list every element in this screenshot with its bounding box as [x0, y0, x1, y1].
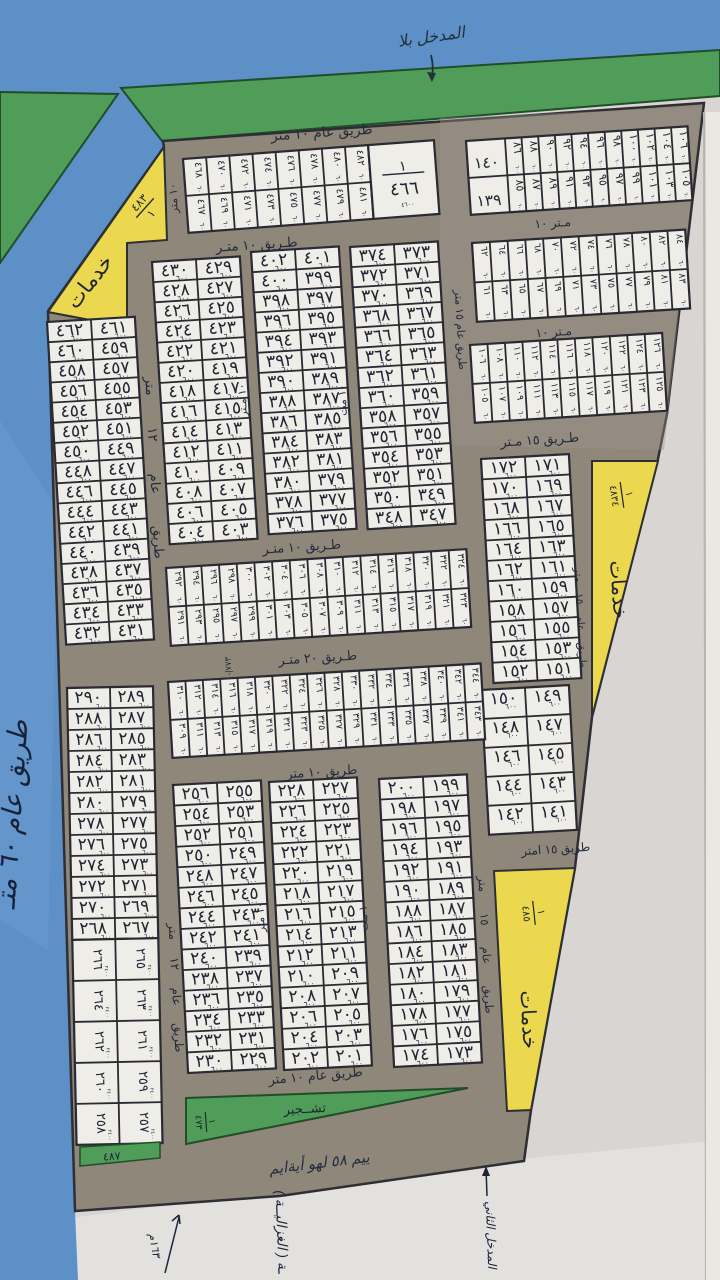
svg-text:٦٠٠: ٦٠٠ — [599, 198, 605, 206]
svg-text:٦٠٠: ٦٠٠ — [291, 525, 303, 535]
svg-text:٦٠٠: ٦٠٠ — [249, 744, 257, 755]
svg-text:٧٠: ٧٠ — [549, 241, 561, 252]
svg-text:٣١١: ٣١١ — [194, 722, 206, 738]
svg-text:٦٠٠: ٦٠٠ — [554, 786, 566, 796]
svg-text:٣٢١: ٣٢١ — [280, 717, 292, 733]
svg-text:١٢٤: ١٢٤ — [633, 338, 645, 354]
svg-text:٤٦٧: ٤٦٧ — [195, 198, 207, 216]
svg-text:٦٠٠: ٦٠٠ — [221, 221, 229, 232]
svg-text:٦٠٠: ٦٠٠ — [353, 738, 361, 749]
svg-text:٦٠٠: ٦٠٠ — [390, 623, 398, 634]
svg-text:٦٠٠: ٦٠٠ — [499, 412, 507, 423]
svg-text:٦٠٠: ٦٠٠ — [179, 748, 187, 759]
svg-text:٢٩٤: ٢٩٤ — [190, 570, 202, 586]
svg-text:٦٠٠: ٦٠٠ — [535, 269, 543, 280]
svg-text:٢٤٠٠: ٢٤٠٠ — [103, 966, 109, 977]
svg-text:٢٩١: ٢٩١ — [174, 610, 186, 626]
svg-text:٦٠٠: ٦٠٠ — [417, 1058, 429, 1068]
svg-text:٦٠٠: ٦٠٠ — [679, 300, 687, 311]
svg-text:٨٧: ٨٧ — [530, 178, 543, 191]
svg-text:٦٠٠: ٦٠٠ — [552, 757, 564, 767]
svg-text:٣٣٠: ٣٣٠ — [348, 675, 360, 691]
svg-text:٦٠٠: ٦٠٠ — [569, 407, 577, 418]
svg-text:١٠٩: ١٠٩ — [513, 385, 525, 401]
svg-text:٤٨١: ٤٨١ — [357, 186, 369, 203]
svg-text:-|٧٧٣: -|٧٧٣ — [222, 656, 233, 676]
svg-text:٦٠٠: ٦٠٠ — [632, 196, 638, 204]
svg-text:٧٦: ٧٦ — [602, 238, 614, 249]
svg-text:٦٠٠: ٦٠٠ — [505, 701, 517, 711]
svg-text:٦٠٠: ٦٠٠ — [588, 266, 596, 277]
svg-text:٦٠٠: ٦٠٠ — [437, 695, 445, 706]
svg-text:٦٠٠: ٦٠٠ — [551, 409, 559, 420]
svg-text:٦٠٠: ٦٠٠ — [455, 694, 463, 705]
svg-text:٣٤٤: ٣٤٤ — [469, 667, 481, 683]
svg-text:٦٠٠: ٦٠٠ — [335, 522, 347, 532]
svg-text:٣٢٩: ٣٢٩ — [350, 713, 362, 729]
svg-text:٦٠٠: ٦٠٠ — [506, 730, 518, 740]
svg-text:٦٠٠: ٦٠٠ — [517, 270, 525, 281]
svg-text:٨٢: ٨٢ — [656, 235, 668, 246]
svg-text:٣٠٠: ٣٠٠ — [243, 566, 255, 582]
svg-text:٦٠٠: ٦٠٠ — [460, 618, 468, 629]
svg-text:٦٠٠: ٦٠٠ — [89, 636, 101, 646]
svg-text:٦٠٠: ٦٠٠ — [597, 160, 603, 168]
svg-text:٦٠٠: ٦٠٠ — [299, 589, 307, 600]
svg-text:١٢٣: ١٢٣ — [636, 377, 648, 394]
svg-text:٦٠٠: ٦٠٠ — [519, 310, 527, 321]
svg-text:٦٠٠: ٦٠٠ — [497, 373, 505, 384]
svg-text:٦٠٠: ٦٠٠ — [314, 214, 322, 225]
svg-text:٦٠٠: ٦٠٠ — [335, 739, 343, 750]
svg-text:٦٠٠: ٦٠٠ — [616, 197, 622, 205]
svg-text:٦٠٠: ٦٠٠ — [405, 735, 413, 746]
svg-text:٨٩: ٨٩ — [546, 177, 559, 190]
svg-text:٦٠٠: ٦٠٠ — [198, 223, 206, 234]
svg-text:٦٠٠: ٦٠٠ — [623, 264, 631, 275]
svg-text:٦٠٠: ٦٠٠ — [547, 163, 553, 171]
svg-text:٦٠٠: ٦٠٠ — [590, 305, 598, 316]
svg-text:٦٠٠: ٦٠٠ — [630, 158, 636, 166]
svg-text:٦٠٠: ٦٠٠ — [370, 585, 378, 596]
svg-text:٦٠٠: ٦٠٠ — [244, 219, 252, 230]
svg-text:٤٧٤: ٤٧٤ — [261, 156, 273, 173]
svg-text:٦٠٠: ٦٠٠ — [266, 630, 274, 641]
svg-text:٦٠٠: ٦٠٠ — [443, 619, 451, 630]
svg-text:١١٧: ١١٧ — [583, 380, 595, 397]
svg-text:٦٠٠: ٦٠٠ — [516, 203, 522, 211]
svg-text:٦٠٠: ٦٠٠ — [563, 162, 569, 170]
svg-text:٦٠٠: ٦٠٠ — [608, 304, 616, 315]
svg-text:١٠ متر: ١٠ متر — [254, 902, 268, 934]
svg-text:٣٣٨: ٣٣٨ — [417, 671, 429, 688]
svg-text:٦٠٠: ٦٠٠ — [192, 535, 204, 545]
svg-text:٦٠٠: ٦٠٠ — [390, 520, 402, 530]
svg-text:٣١٢: ٣١٢ — [191, 684, 203, 700]
svg-text:١٠٥: ١٠٥ — [679, 168, 692, 187]
svg-text:٩٨: ٩٨ — [610, 135, 623, 148]
svg-text:٦٠٠: ٦٠٠ — [301, 741, 309, 752]
svg-text:٦٠٠: ٦٠٠ — [570, 267, 578, 278]
svg-text:٦٠٠: ٦٠٠ — [516, 411, 524, 422]
svg-text:٢٤٠٠: ٢٤٠٠ — [105, 1089, 111, 1100]
svg-text:٦٠٠: ٦٠٠ — [193, 596, 201, 607]
svg-text:٦٠٠: ٦٠٠ — [197, 747, 205, 758]
svg-text:٩٠: ٩٠ — [544, 139, 557, 152]
svg-text:٣٢٠: ٣٢٠ — [261, 680, 273, 696]
svg-text:٦٠٠: ٦٠٠ — [372, 624, 380, 635]
svg-text:٢٩٧: ٢٩٧ — [227, 607, 239, 624]
svg-text:٦٠٠: ٦٠٠ — [255, 1062, 267, 1072]
svg-text:١١٦: ١١٦ — [563, 342, 575, 358]
svg-text:٦٠٠: ٦٠٠ — [482, 413, 490, 424]
svg-text:٣٣٣: ٣٣٣ — [385, 711, 397, 728]
svg-text:١١٠: ١١٠ — [511, 346, 523, 362]
svg-text:١٠٥: ١٠٥ — [478, 387, 490, 403]
svg-text:٦٠٠: ٦٠٠ — [288, 179, 296, 190]
svg-text:٦٠٠: ٦٠٠ — [337, 212, 345, 223]
svg-text:٩٩: ٩٩ — [629, 171, 642, 184]
svg-text:٦٠٠: ٦٠٠ — [290, 216, 298, 227]
svg-text:٣١٨: ٣١٨ — [402, 556, 414, 573]
svg-text:١٠٨: ١٠٨ — [493, 347, 505, 364]
svg-text:٦٠٠: ٦٠٠ — [334, 587, 342, 598]
svg-text:٣٢٣: ٣٢٣ — [298, 716, 310, 733]
svg-text:٦٠٠: ٦٠٠ — [352, 586, 360, 597]
svg-text:٦٠٠: ٦٠٠ — [281, 590, 289, 601]
svg-text:٣١٥: ٣١٥ — [386, 597, 398, 613]
svg-text:٤٦٨: ٤٦٨ — [192, 162, 204, 180]
svg-text:٤٧٣: ٤٧٣ — [194, 1115, 205, 1130]
svg-text:٦٠٠: ٦٠٠ — [654, 363, 662, 374]
svg-text:٦٠٠: ٦٠٠ — [440, 580, 448, 591]
svg-text:٦٠٠: ٦٠٠ — [530, 164, 536, 172]
svg-text:٣٢٤: ٣٢٤ — [455, 553, 467, 569]
svg-text:٦٠٠: ٦٠٠ — [666, 193, 672, 201]
svg-text:٦٠٠: ٦٠٠ — [407, 622, 415, 633]
svg-text:٧٧: ٧٧ — [623, 276, 635, 288]
svg-text:٦٠٠: ٦٠٠ — [659, 261, 667, 272]
svg-text:٢٤٠٠: ٢٤٠٠ — [146, 965, 152, 976]
svg-text:٦٠٠: ٦٠٠ — [301, 628, 309, 639]
svg-text:٣٢٦: ٣٢٦ — [313, 677, 325, 693]
svg-text:٦٠٠: ٦٠٠ — [333, 701, 341, 712]
svg-text:٨٤: ٨٤ — [674, 234, 686, 245]
svg-text:٢٩٦: ٢٩٦ — [207, 569, 219, 585]
svg-text:٦٠٠: ٦٠٠ — [283, 742, 291, 753]
svg-text:٧٨: ٧٨ — [620, 237, 632, 249]
svg-text:٦٠٠: ٦٠٠ — [317, 588, 325, 599]
svg-text:٦٠٠: ٦٠٠ — [555, 307, 563, 318]
svg-text:مـتر ١٠: مـتر ١٠ — [534, 215, 571, 231]
svg-text:٣٢١: ٣٢١ — [440, 593, 452, 609]
svg-text:٦٠٠: ٦٠٠ — [511, 817, 523, 827]
svg-text:٦٠٠: ٦٠٠ — [195, 635, 203, 646]
svg-text:٦٠٠: ٦٠٠ — [644, 302, 652, 313]
svg-text:٦٠٠: ٦٠٠ — [508, 759, 520, 769]
svg-text:٦٠٠: ٦٠٠ — [641, 262, 649, 273]
svg-text:٦٢: ٦٢ — [478, 246, 490, 257]
svg-text:٦٠٠: ٦٠٠ — [318, 740, 326, 751]
svg-text:٦٠٠: ٦٠٠ — [663, 156, 669, 164]
svg-text:٦٠٠: ٦٠٠ — [549, 201, 555, 209]
svg-text:٣١٠: ٣١٠ — [331, 561, 343, 577]
svg-text:٦٠٠: ٦٠٠ — [646, 157, 652, 165]
svg-text:٨٣: ٨٣ — [676, 273, 688, 285]
svg-text:٦٠٠: ٦٠٠ — [213, 634, 221, 645]
svg-text:٦٠٠: ٦٠٠ — [458, 579, 466, 590]
svg-text:٦٠٠: ٦٠٠ — [425, 620, 433, 631]
svg-text:خدمات: خدمات — [605, 560, 631, 620]
svg-text:٢٤٠٠: ٢٤٠٠ — [147, 1006, 153, 1017]
svg-text:٣٣٤: ٣٣٤ — [382, 673, 394, 689]
svg-text:٣٢٢: ٣٢٢ — [278, 679, 290, 695]
svg-text:٦٦: ٦٦ — [514, 244, 526, 255]
svg-text:خدمات: خدمات — [515, 990, 540, 1050]
svg-text:٣٤٣: ٣٤٣ — [471, 705, 483, 722]
svg-text:٦٠٠: ٦٠٠ — [422, 581, 430, 592]
svg-text:٧١: ٧١ — [569, 280, 581, 291]
svg-text:٦٠٠: ٦٠٠ — [440, 733, 448, 744]
svg-text:٤٨٥: ٤٨٥ — [519, 905, 532, 922]
svg-text:٣١٩: ٣١٩ — [422, 594, 434, 610]
svg-text:٦٠٠: ٦٠٠ — [264, 591, 272, 602]
svg-text:١٠٣: ١٠٣ — [662, 169, 675, 188]
svg-text:٨٨: ٨٨ — [527, 140, 540, 153]
svg-text:٦٠٠: ٦٠٠ — [211, 595, 219, 606]
svg-text:٦٠٠: ٦٠٠ — [403, 697, 411, 708]
svg-text:٩٢: ٩٢ — [560, 138, 573, 151]
svg-text:٤٧٣: ٤٧٣ — [264, 193, 276, 211]
svg-text:٢٤٠٠: ٢٤٠٠ — [148, 1088, 154, 1099]
svg-text:٦٠٠: ٦٠٠ — [479, 374, 487, 385]
svg-text:٦٥: ٦٥ — [516, 283, 528, 294]
svg-text:٦٠٠: ٦٠٠ — [580, 161, 586, 169]
svg-text:٦٠٠: ٦٠٠ — [351, 700, 359, 711]
svg-text:١٠ مت: ١٠ مت — [336, 384, 350, 416]
svg-text:١١٤: ١١٤ — [546, 344, 558, 360]
svg-text:٨٠: ٨٠ — [638, 236, 650, 247]
svg-text:٦٠٠: ٦٠٠ — [311, 177, 319, 188]
svg-text:٢٤٠٠: ٢٤٠٠ — [149, 1129, 155, 1140]
svg-text:٦٠٠: ٦٠٠ — [357, 173, 365, 184]
svg-text:٦٠٠: ٦٠٠ — [385, 698, 393, 709]
svg-text:٦٠٠: ٦٠٠ — [661, 301, 669, 312]
svg-text:١١١: ١١١ — [531, 384, 543, 400]
svg-text:٦٠٠: ٦٠٠ — [387, 584, 395, 595]
svg-text:١٠٦: ١٠٦ — [476, 348, 488, 364]
svg-text:٣٢٨: ٣٢٨ — [330, 676, 342, 693]
svg-text:٦٠٠: ٦٠٠ — [229, 707, 237, 718]
svg-text:٣١٧: ٣١٧ — [246, 719, 258, 736]
svg-text:٩٧: ٩٧ — [613, 173, 626, 186]
svg-text:٨١: ٨١ — [658, 274, 670, 285]
svg-text:٤٦٩: ٤٦٩ — [218, 197, 230, 214]
svg-text:٣٠٨: ٣٠٨ — [313, 562, 325, 579]
svg-text:٦٠٠: ٦٠٠ — [586, 406, 594, 417]
svg-text:٦٠٠: ٦٠٠ — [514, 372, 522, 383]
svg-text:٤٧١: ٤٧١ — [241, 195, 253, 212]
svg-text:٣٠٢: ٣٠٢ — [260, 565, 272, 581]
svg-text:٦٣: ٦٣ — [498, 284, 510, 296]
svg-text:٣٢٧: ٣٢٧ — [333, 714, 345, 731]
svg-text:٦٠٠: ٦٠٠ — [533, 202, 539, 210]
svg-text:٣٣٩: ٣٣٩ — [437, 707, 449, 723]
svg-text:٣٠٣: ٣٠٣ — [281, 603, 293, 620]
svg-text:٤٨٢: ٤٨٢ — [354, 149, 366, 166]
svg-text:١٠٧: ١٠٧ — [496, 386, 508, 403]
svg-text:٦٠٠: ٦٠٠ — [178, 636, 186, 647]
svg-text:٦٠٠: ٦٠٠ — [267, 217, 275, 228]
svg-text:٣١٥: ٣١٥ — [228, 720, 240, 736]
svg-text:٦٠٠: ٦٠٠ — [626, 303, 634, 314]
svg-text:٣٠٤: ٣٠٤ — [278, 564, 290, 580]
svg-text:٣٠٦: ٣٠٦ — [296, 563, 308, 579]
svg-text:١٠ مت: ١٠ مت — [357, 899, 371, 931]
svg-text:٦٠٠: ٦٠٠ — [231, 745, 239, 756]
svg-text:٦٩: ٦٩ — [552, 281, 564, 292]
svg-text:٧٩: ٧٩ — [641, 275, 653, 286]
svg-text:٦٠٠: ٦٠٠ — [636, 364, 644, 375]
svg-text:٩٦: ٩٦ — [593, 136, 606, 149]
svg-text:٦٠٠: ٦٠٠ — [549, 370, 557, 381]
svg-text:٢٤٠٠: ٢٤٠٠ — [104, 1007, 110, 1018]
svg-text:٦٠٠: ٦٠٠ — [248, 632, 256, 643]
svg-text:١١٣: ١١٣ — [548, 382, 560, 399]
svg-text:٦٠٠: ٦٠٠ — [264, 705, 272, 716]
svg-text:٣١٨: ٣١٨ — [243, 681, 255, 698]
svg-text:٣١٢: ٣١٢ — [349, 560, 361, 576]
svg-text:٦٠٠: ٦٠٠ — [584, 367, 592, 378]
svg-text:١١٨: ١١٨ — [581, 341, 593, 358]
svg-text:مـتر ١٠: مـتر ١٠ — [535, 324, 572, 340]
svg-text:٦٠٠: ٦٠٠ — [405, 583, 413, 594]
svg-text:١١٩: ١١٩ — [601, 379, 613, 395]
svg-text:٣٣٧: ٣٣٧ — [419, 708, 431, 725]
svg-text:٦٠٠: ٦٠٠ — [677, 260, 685, 271]
svg-text:٦٠٠: ٦٠٠ — [214, 746, 222, 757]
svg-text:٦٠٠: ٦٠٠ — [246, 593, 254, 604]
svg-text:٦٠٠: ٦٠٠ — [422, 734, 430, 745]
svg-text:٢٤٠٠: ٢٤٠٠ — [148, 1047, 154, 1058]
svg-text:٦٠٠: ٦٠٠ — [133, 633, 145, 643]
svg-text:٣١٩: ٣١٩ — [263, 718, 275, 734]
svg-text:١٠٠: ١٠٠ — [627, 134, 640, 152]
svg-text:٦٠٠: ٦٠٠ — [370, 737, 378, 748]
svg-text:١٠ متر: ١٠ متر — [167, 183, 181, 215]
svg-text:٣٠٥: ٣٠٥ — [298, 602, 310, 618]
svg-text:٣١٧: ٣١٧ — [404, 595, 416, 612]
svg-text:٩٤: ٩٤ — [577, 137, 590, 150]
svg-text:٦٠٠: ٦٠٠ — [194, 709, 202, 720]
svg-text:٦٠٠: ٦٠٠ — [266, 743, 274, 754]
svg-text:٦٠٠: ٦٠٠ — [549, 699, 561, 709]
svg-text:٢٩٢: ٢٩٢ — [172, 571, 184, 587]
svg-text:١٠١: ١٠١ — [646, 170, 659, 188]
svg-text:٣٣٦: ٣٣٦ — [400, 672, 412, 688]
svg-text:٦٠٠: ٦٠٠ — [604, 405, 612, 416]
svg-text:٦١: ٦١ — [481, 285, 493, 296]
svg-text:٦٠٠: ٦٠٠ — [619, 365, 627, 376]
svg-text:٦٠٠: ٦٠٠ — [211, 1064, 223, 1074]
svg-text:٤٦٠٠: ٤٦٠٠ — [401, 202, 414, 209]
svg-text:٦٠٠: ٦٠٠ — [621, 404, 629, 415]
svg-text:٦٠٠: ٦٠٠ — [319, 627, 327, 638]
svg-text:٦٠٠: ٦٠٠ — [246, 706, 254, 717]
svg-text:٦٠٠: ٦٠٠ — [212, 708, 220, 719]
svg-text:٣٢٠: ٣٢٠ — [419, 555, 431, 571]
svg-text:٦٠٠: ٦٠٠ — [534, 410, 542, 421]
svg-text:٦٠٠: ٦٠٠ — [510, 788, 522, 798]
svg-text:٦٠٠: ٦٠٠ — [613, 159, 619, 167]
svg-text:٤٧٦: ٤٧٦ — [284, 155, 296, 172]
svg-text:٤٧٥: ٤٧٥ — [287, 191, 299, 208]
svg-text:٦٠٠: ٦٠٠ — [481, 273, 489, 284]
svg-text:٢٩٨: ٢٩٨ — [225, 568, 237, 585]
svg-text:٤٨٧: ٤٨٧ — [103, 1150, 122, 1163]
svg-text:٣١٠: ٣١٠ — [174, 685, 186, 701]
svg-text:١٢١: ١٢١ — [618, 378, 630, 394]
svg-text:٦٠٠: ٦٠٠ — [639, 403, 647, 414]
svg-text:٦٠٠: ٦٠٠ — [228, 594, 236, 605]
svg-text:٤٧٧: ٤٧٧ — [310, 190, 322, 208]
svg-text:٣٠١: ٣٠١ — [263, 604, 275, 620]
svg-text:٦٠٠: ٦٠٠ — [555, 815, 567, 825]
svg-text:١١٢: ١١٢ — [528, 345, 540, 361]
svg-text:٩١: ٩١ — [563, 176, 576, 189]
svg-text:١٢٥: ١٢٥ — [653, 376, 665, 392]
svg-text:١٤٠: ١٤٠ — [473, 154, 499, 173]
svg-text:٨٥: ٨٥ — [513, 179, 526, 192]
svg-text:٦٠٠: ٦٠٠ — [281, 704, 289, 715]
svg-text:٦٠٠: ٦٠٠ — [218, 184, 226, 195]
svg-text:٦٠٠: ٦٠٠ — [573, 306, 581, 317]
svg-text:٩٥: ٩٥ — [596, 174, 609, 187]
svg-text:٦٠٠: ٦٠٠ — [682, 192, 688, 200]
svg-text:٢٩٣: ٢٩٣ — [192, 609, 204, 626]
svg-text:٧٤: ٧٤ — [585, 239, 597, 250]
svg-text:٦٠٠: ٦٠٠ — [516, 674, 528, 684]
svg-text:٦٧: ٦٧ — [534, 282, 546, 294]
svg-text:١٢٦: ١٢٦ — [651, 337, 663, 353]
svg-text:٣٤١: ٣٤١ — [454, 706, 466, 722]
svg-text:٦٠٠: ٦٠٠ — [284, 629, 292, 640]
svg-text:٦٠٠: ٦٠٠ — [532, 371, 540, 382]
svg-text:١٠ مـتر: ١٠ مـتر — [236, 383, 250, 418]
svg-text:١٢٠: ١٢٠ — [598, 340, 610, 356]
svg-text:٦٠٠: ٦٠٠ — [550, 728, 562, 738]
svg-text:٦٠٠: ٦٠٠ — [680, 154, 686, 162]
svg-text:٦٠٠: ٦٠٠ — [195, 186, 203, 197]
svg-text:٦٠٠: ٦٠٠ — [434, 517, 446, 527]
svg-text:١٣٩: ١٣٩ — [476, 192, 502, 211]
svg-text:٣١٤: ٣١٤ — [366, 559, 378, 575]
svg-text:٣٣٢: ٣٣٢ — [365, 674, 377, 690]
svg-text:٦٠٠: ٦٠٠ — [472, 693, 480, 704]
svg-text:٦٠٠: ٦٠٠ — [560, 672, 572, 682]
svg-text:٣١٦: ٣١٦ — [384, 558, 396, 574]
svg-text:١٠٦: ١٠٦ — [677, 130, 690, 149]
svg-text:٣٢٣: ٣٢٣ — [457, 592, 469, 609]
svg-text:٦٠٠: ٦٠٠ — [175, 597, 183, 608]
svg-text:٦٠٠: ٦٠٠ — [354, 625, 362, 636]
svg-text:٦٠٠: ٦٠٠ — [457, 732, 465, 743]
svg-text:٦٠٠: ٦٠٠ — [265, 180, 273, 191]
svg-text:٦٠٠: ٦٠٠ — [552, 268, 560, 279]
svg-text:٦٠٠: ٦٠٠ — [360, 210, 368, 221]
svg-text:٤٧٢: ٤٧٢ — [238, 158, 250, 175]
svg-text:٣٠٩: ٣٠٩ — [333, 600, 345, 616]
